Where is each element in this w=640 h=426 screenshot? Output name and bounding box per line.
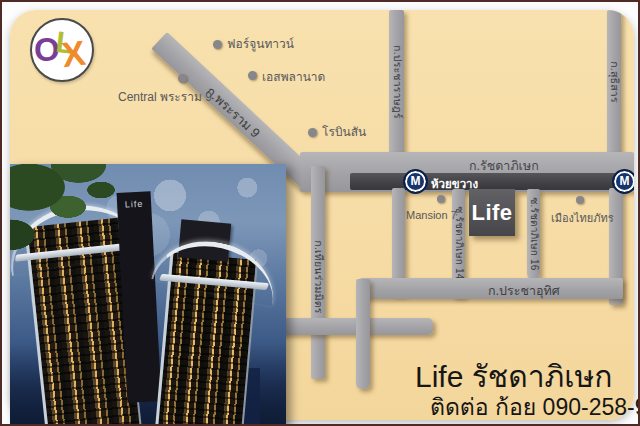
mrt-station-sutthisan-icon: M — [612, 169, 634, 194]
road-sutthisan-north: ก.สุธิสาร — [607, 10, 621, 154]
olx-letter-x: X — [60, 33, 88, 76]
tree-foliage — [10, 164, 146, 288]
contact-phone: ติดต่อ ก้อย 090-258-9270 — [430, 389, 640, 425]
life-project-box: Life — [469, 189, 515, 236]
poi-dot-esplanade — [248, 71, 257, 80]
road-pracharat-label: ก.ประชาราษฎร์ — [388, 45, 405, 119]
poi-label-robinson: โรบินสัน — [322, 122, 366, 141]
road-pracharat-north: ก.ประชาราษฎร์ — [389, 10, 404, 154]
road-thiamruammit: ก.เทียนร่วมมิตร — [311, 166, 325, 379]
road-minor-vertical — [356, 279, 370, 389]
road-prachauthit-label: ก.ประชาอุทิศ — [488, 281, 560, 301]
poi-label-muangthai: เมืองไทยภัทร — [551, 209, 614, 227]
poi-dot-fortune — [213, 40, 222, 49]
road-thiamruammit-label: ก.เทียนร่วมมิตร — [310, 240, 327, 313]
poi-dot-central — [178, 74, 187, 83]
mrt-station-huai-khwang-icon: M — [403, 169, 428, 194]
poi-label-fortune: ฟอร์จูนทาวน์ — [227, 34, 294, 53]
life-project-label: Life — [471, 200, 512, 225]
poi-label-central: Central พระราม 9 — [118, 87, 212, 106]
olx-logo: O L X — [30, 18, 94, 82]
road-soi16-label: ซ.รัชดาภิเษก 16 — [526, 198, 541, 271]
poi-dot-robinson — [308, 128, 317, 137]
poi-label-mansion7: Mansion 7 — [406, 209, 457, 221]
poi-dot-mansion7 — [437, 195, 445, 203]
poi-label-esplanade: เอสพลานาด — [262, 67, 325, 86]
road-sutthisan-label: ก.สุธิสาร — [606, 61, 623, 102]
road-soi16: ซ.รัชดาภิเษก 16 — [527, 189, 540, 279]
poi-dot-muangthai — [576, 196, 584, 204]
listing-image: ก.ประชาราษฎร์ ก.สุธิสาร ก.พระราม 9 ก.รัช… — [0, 0, 640, 426]
tower-right — [154, 253, 258, 426]
condo-photo: Life — [10, 164, 286, 426]
